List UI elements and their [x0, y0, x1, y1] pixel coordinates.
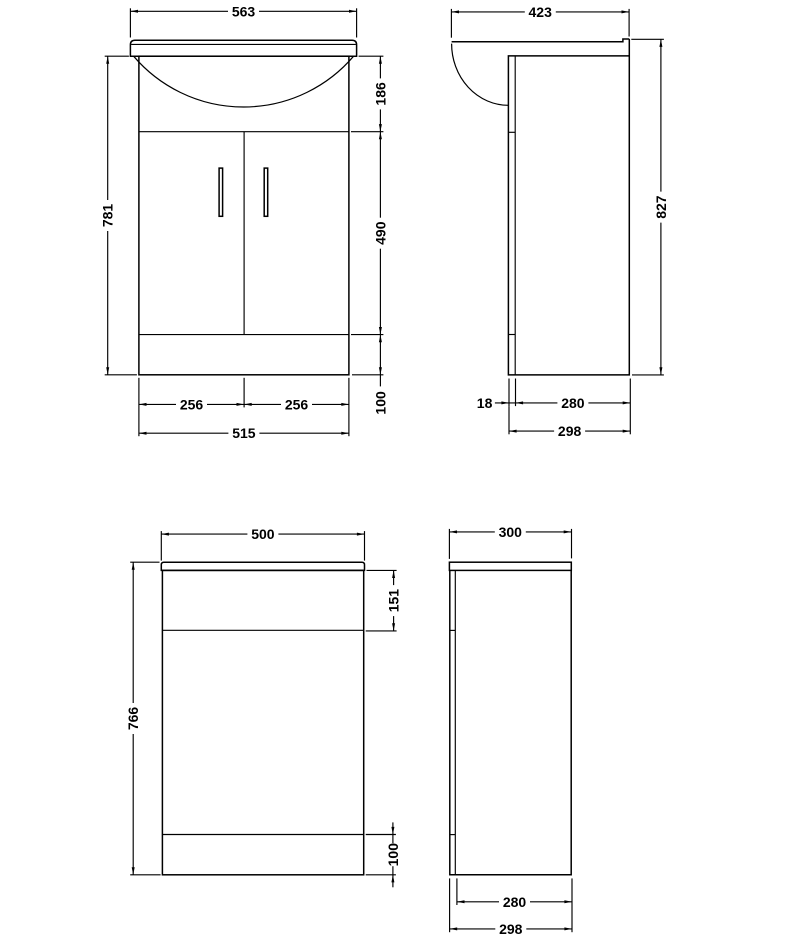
- svg-text:100: 100: [385, 843, 401, 867]
- svg-text:256: 256: [180, 396, 204, 412]
- svg-text:500: 500: [251, 526, 275, 542]
- svg-text:280: 280: [561, 395, 585, 411]
- svg-text:490: 490: [372, 221, 388, 245]
- svg-text:781: 781: [100, 204, 116, 228]
- svg-text:100: 100: [372, 391, 388, 415]
- svg-text:515: 515: [232, 425, 256, 441]
- svg-text:298: 298: [499, 921, 523, 937]
- svg-text:766: 766: [125, 707, 141, 731]
- svg-text:298: 298: [558, 423, 582, 439]
- svg-text:423: 423: [529, 4, 553, 20]
- svg-text:827: 827: [653, 195, 669, 219]
- svg-text:256: 256: [285, 396, 309, 412]
- svg-text:300: 300: [499, 524, 523, 540]
- svg-text:186: 186: [372, 82, 388, 106]
- svg-text:280: 280: [503, 894, 527, 910]
- svg-text:563: 563: [232, 3, 256, 19]
- svg-text:151: 151: [386, 589, 402, 613]
- svg-text:18: 18: [477, 395, 493, 411]
